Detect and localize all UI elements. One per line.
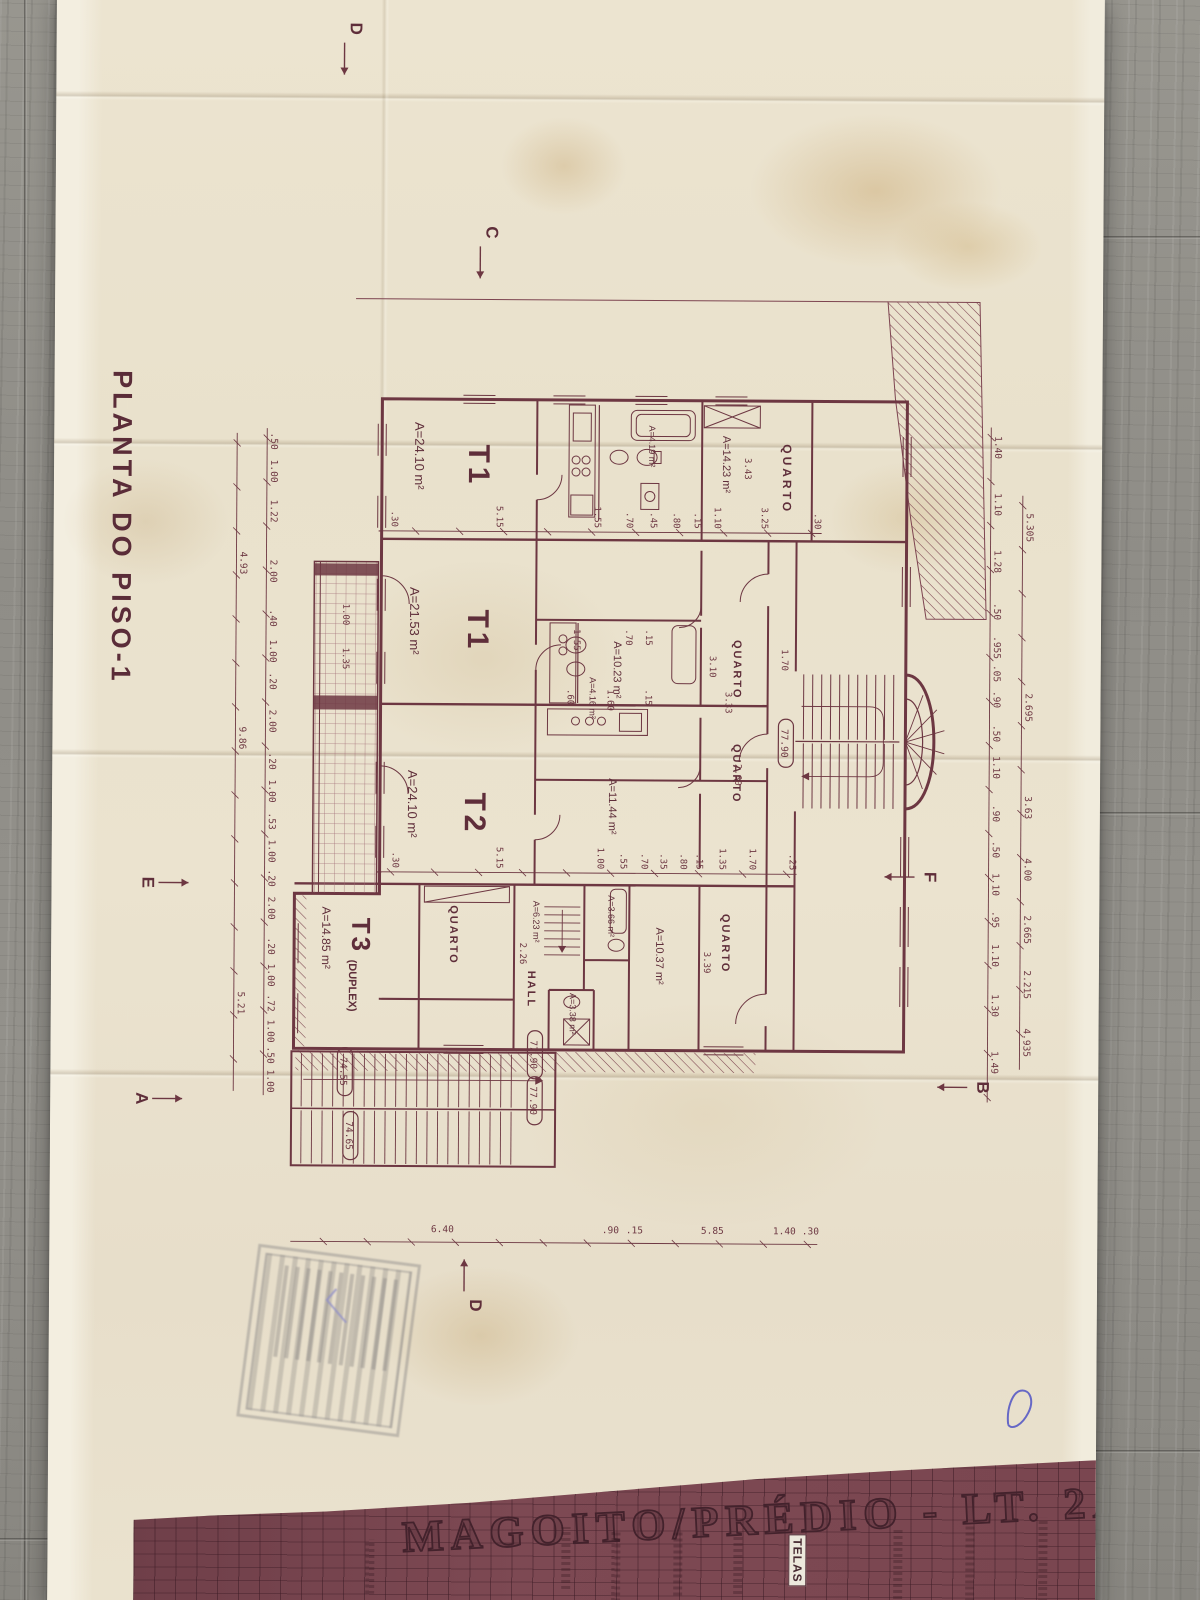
dim-label: .45	[648, 512, 658, 528]
room-label: A=4.16 m²	[587, 677, 597, 719]
section-label: E	[138, 877, 157, 888]
dim-label: .95	[989, 911, 1000, 928]
dim-label: 1.55	[571, 629, 581, 651]
dim-line	[377, 872, 797, 875]
dim-label: .80	[678, 853, 688, 869]
level-label: 74.65	[343, 1121, 354, 1150]
titleblock-text-smudge	[673, 1530, 682, 1596]
dim-label: .25	[787, 854, 797, 870]
dim-label: 2.60	[732, 764, 742, 786]
handwritten-blue-mark	[1000, 1385, 1044, 1437]
dim-label: 1.35	[717, 848, 727, 870]
titleblock-text-smudge	[1155, 1509, 1165, 1600]
titleblock-text-smudge	[561, 1527, 570, 1589]
section-arrowhead	[885, 873, 892, 881]
dim-label: 2.695	[1022, 693, 1033, 722]
dim-label: 1.00	[265, 964, 276, 987]
approval-stamp	[236, 1244, 421, 1438]
dim-label: 1.00	[595, 847, 605, 869]
dim-label: 3.33	[723, 692, 733, 714]
dim-label: 5.15	[494, 847, 504, 869]
dim-label: .50	[991, 603, 1002, 621]
dim-label: .70	[623, 629, 633, 645]
dim-label: 1.00	[267, 640, 278, 663]
titleblock-text-smudge	[611, 1531, 620, 1600]
dim-label: 1.40	[773, 1226, 796, 1237]
stair-arrowhead	[801, 772, 809, 780]
dim-label: .05	[991, 665, 1002, 682]
dim-label: 2.00	[266, 710, 277, 733]
dim-label: .15	[626, 1225, 643, 1236]
dim-label: 1.60	[605, 689, 615, 711]
dim-label: 5.15	[494, 506, 504, 528]
room-label: QUARTO	[780, 444, 794, 514]
dim-label: .70	[639, 853, 649, 869]
section-label: D	[466, 1299, 485, 1311]
dim-label: 3.39	[701, 952, 711, 974]
dim-label: 1.49	[988, 1051, 999, 1074]
floor-plan-svg: T1A=24.10 m²T1A=21.53 m²T2A=24.10 m²T3(D…	[82, 2, 1050, 1338]
dim-label: .55	[618, 853, 628, 869]
stamp-text-smudge	[245, 1253, 412, 1429]
titleblock-text-smudge	[1101, 1512, 1111, 1600]
section-arrowhead	[476, 271, 484, 278]
dim-label: .50	[268, 433, 279, 451]
section-arrowhead	[181, 879, 188, 887]
dim-label: .53	[266, 813, 277, 830]
dim-label: 1.40	[992, 436, 1003, 459]
dim-label: 2.00	[267, 560, 278, 583]
dim-label: .30	[389, 511, 399, 527]
section-arrowhead	[460, 1259, 468, 1266]
floor-plan-rotated: T1A=24.10 m²T1A=21.53 m²T2A=24.10 m²T3(D…	[82, 2, 1050, 1338]
dim-label: .50	[264, 1047, 275, 1065]
wood-plank-seam	[1088, 236, 1200, 239]
dim-label: 2.215	[1021, 970, 1032, 999]
dim-label: .50	[990, 841, 1001, 859]
dim-label: .20	[267, 673, 278, 691]
dim-label: 5.305	[1024, 513, 1035, 542]
dim-label: 1.55	[592, 506, 602, 528]
title-block: MAGOITO/PRÉDIO - LT. 2A TELAS	[133, 1446, 1096, 1600]
dim-label: 6.40	[431, 1224, 454, 1235]
room-label: A=14.85 m²	[319, 906, 333, 968]
dim-label: 1.10	[990, 756, 1001, 779]
wood-plank-seam	[1088, 812, 1200, 815]
dim-label: 2.26	[517, 943, 527, 965]
photo-scene: T1A=24.10 m²T1A=21.53 m²T2A=24.10 m²T3(D…	[0, 0, 1200, 1600]
dim-label: 1.00	[265, 1020, 276, 1043]
dim-label: 3.63	[1022, 796, 1033, 819]
stair-arrowhead	[558, 946, 566, 953]
dim-label: 4.00	[1022, 858, 1033, 881]
dim-label: 2.665	[1021, 915, 1032, 944]
dim-label: 1.00	[340, 604, 350, 626]
room-label: A=6.23 m²	[531, 901, 541, 943]
dim-label: .15	[643, 689, 653, 705]
section-label: D	[347, 22, 366, 34]
dim-label: .20	[266, 753, 277, 771]
titleblock-text-smudge	[1038, 1518, 1048, 1600]
titleblock-text-smudge	[733, 1534, 742, 1594]
room-label: T2	[458, 792, 491, 835]
dim-label: 3.10	[707, 656, 717, 678]
room-label: A=11.44 m²	[606, 778, 618, 835]
room-label: A=24.10 m²	[412, 422, 427, 490]
dim-line	[379, 531, 822, 534]
dim-label: 5.85	[701, 1226, 724, 1237]
room-label: A=3.66 m²	[606, 895, 616, 937]
fixtures	[424, 404, 761, 1046]
dim-label: .35	[658, 853, 668, 869]
dim-label: 9.86	[236, 726, 247, 749]
section-arrowhead	[175, 1095, 182, 1103]
dim-label: 3.43	[742, 458, 752, 480]
dim-label: 1.22	[268, 500, 279, 523]
dim-label: .72	[265, 995, 276, 1012]
dim-label: 1.28	[991, 550, 1002, 573]
room-label: QUARTO	[719, 914, 731, 974]
dim-label: 1.30	[989, 994, 1000, 1017]
level-label: 77.90	[527, 1086, 538, 1115]
dim-label: .30	[812, 513, 822, 529]
room-label: QUARTO	[447, 905, 459, 965]
room-label: T3	[346, 918, 376, 955]
room-label: (DUPLEX)	[346, 960, 358, 1012]
dim-label: .15	[694, 853, 704, 869]
dim-label: .20	[265, 938, 276, 956]
section-label: A	[132, 1092, 151, 1104]
wood-plank-seam	[1088, 1450, 1200, 1453]
dim-label: 1.70	[779, 649, 789, 671]
titleblock-white-label: TELAS	[788, 1534, 806, 1586]
section-label: B	[973, 1081, 992, 1093]
room-label: T1	[461, 609, 494, 652]
dim-label: 1.10	[992, 493, 1003, 516]
dim-label: .15	[692, 512, 702, 528]
dim-label: 1.00	[268, 460, 279, 483]
titleblock-text-smudge	[365, 1540, 374, 1594]
room-label: T1	[462, 444, 495, 487]
section-label: F	[921, 872, 940, 883]
dim-label: .30	[802, 1226, 820, 1237]
section-label: C	[482, 226, 501, 238]
dim-label: 1.35	[340, 648, 350, 670]
dim-label: 4.935	[1020, 1028, 1031, 1057]
dim-label: 1.00	[264, 1070, 275, 1093]
room-label: HALL	[525, 971, 537, 1008]
section-arrowhead	[937, 1083, 944, 1091]
dim-label: .90	[991, 691, 1002, 709]
stamp-blue-check	[320, 1284, 355, 1328]
dim-label: .955	[991, 636, 1002, 659]
dim-label: .70	[624, 512, 634, 528]
plan-title: PLANTA DO PISO-1	[106, 370, 138, 685]
room-label: A=4.19 m²	[647, 425, 657, 467]
dim-label: .15	[643, 629, 653, 645]
section-arrowhead	[340, 68, 348, 75]
staircases	[301, 671, 945, 1167]
dim-label: 1.10	[989, 873, 1000, 896]
dim-label: 1.70	[747, 848, 757, 870]
dim-label: 1.10	[712, 507, 722, 529]
level-label: 77.90	[527, 1040, 538, 1069]
dim-label: 2.00	[265, 897, 276, 920]
level-label: 74.55	[337, 1057, 348, 1086]
room-label: A=3.38 m²	[568, 993, 578, 1035]
room-label: A=14.23 m²	[720, 436, 732, 494]
drawing-sheet: T1A=24.10 m²T1A=21.53 m²T2A=24.10 m²T3(D…	[47, 0, 1105, 1600]
dim-label: .50	[990, 725, 1001, 743]
dim-label: .60	[565, 689, 575, 705]
dim-label: .90	[602, 1225, 620, 1236]
dim-label: .30	[390, 852, 400, 868]
room-label: QUARTO	[731, 640, 743, 700]
dim-label: .40	[267, 610, 278, 628]
door-arcs	[379, 474, 769, 1024]
titleblock-text-smudge	[893, 1527, 902, 1599]
wood-plank-seam	[24, 0, 27, 1600]
dim-label: 3.25	[759, 507, 769, 529]
titleblock-text-smudge	[965, 1523, 974, 1600]
dim-label: 5.21	[235, 991, 246, 1014]
room-label: A=10.37 m²	[653, 927, 665, 985]
dim-label: 1.10	[989, 944, 1000, 967]
room-label: A=21.53 m²	[407, 587, 422, 655]
dim-label: 1.00	[266, 780, 277, 803]
level-label: 77.90	[778, 729, 789, 758]
dim-label: 1.00	[266, 840, 277, 863]
room-label: A=24.10 m²	[405, 770, 420, 838]
dim-label: .90	[990, 805, 1001, 823]
dim-label: .20	[265, 870, 276, 888]
dim-label: .80	[671, 512, 681, 528]
dim-label: 4.93	[237, 551, 248, 574]
